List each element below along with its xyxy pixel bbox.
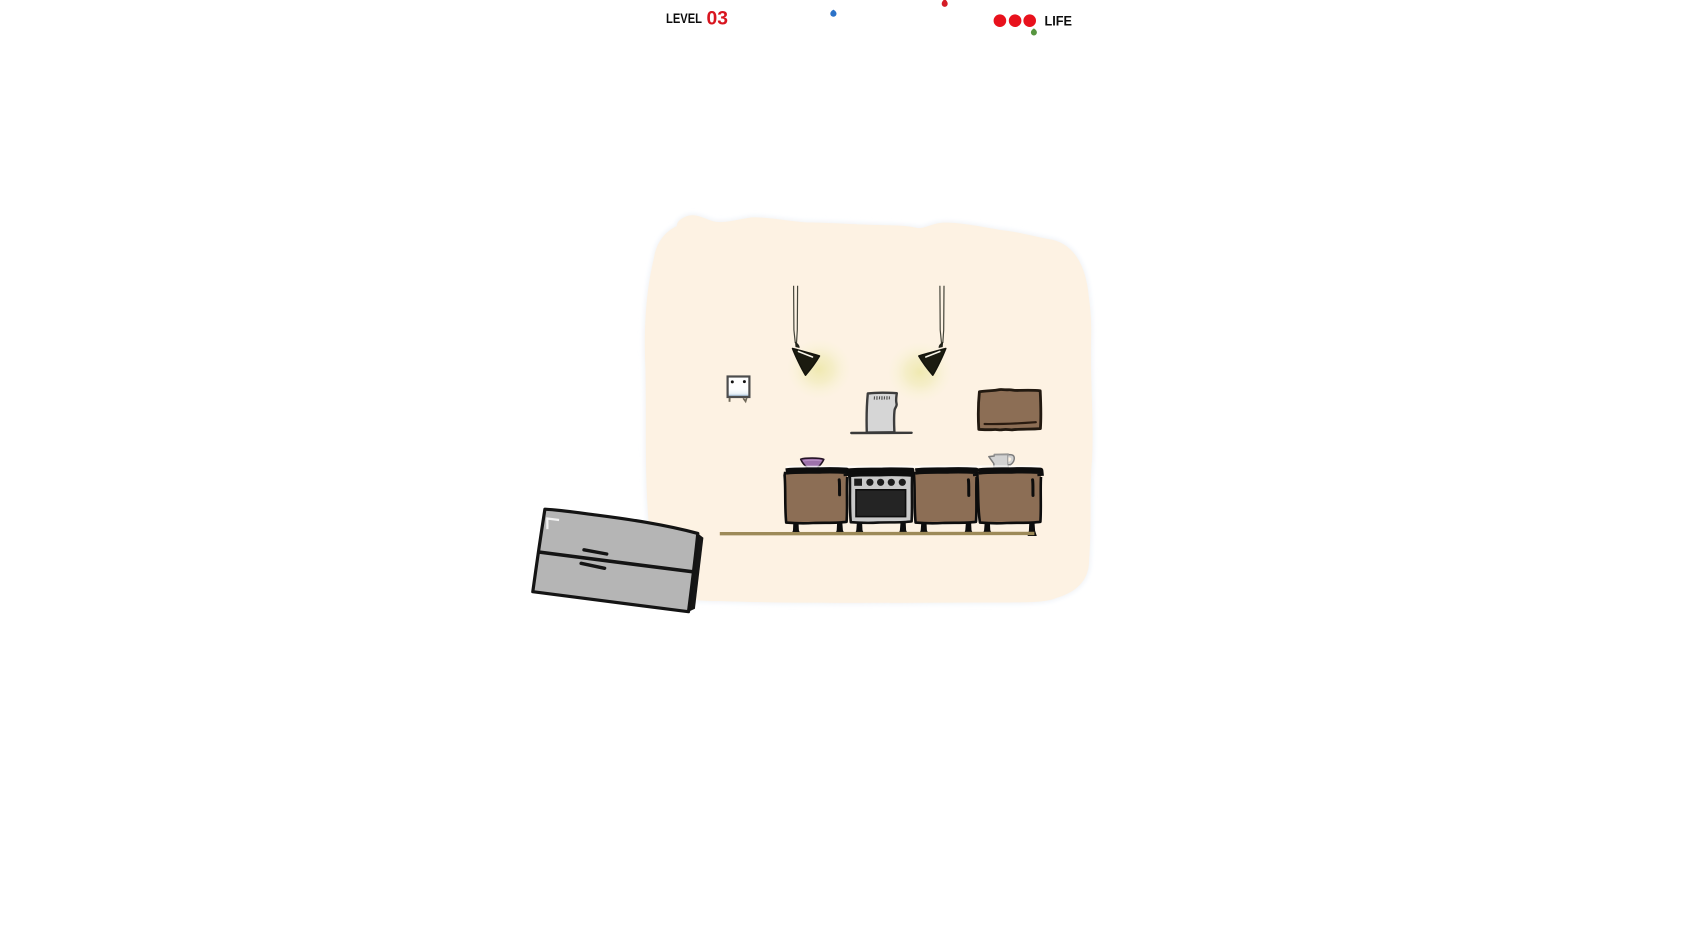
svg-text:03: 03 bbox=[707, 8, 729, 30]
svg-text:LEVEL: LEVEL bbox=[666, 10, 702, 26]
svg-text:LIFE: LIFE bbox=[1045, 12, 1073, 28]
